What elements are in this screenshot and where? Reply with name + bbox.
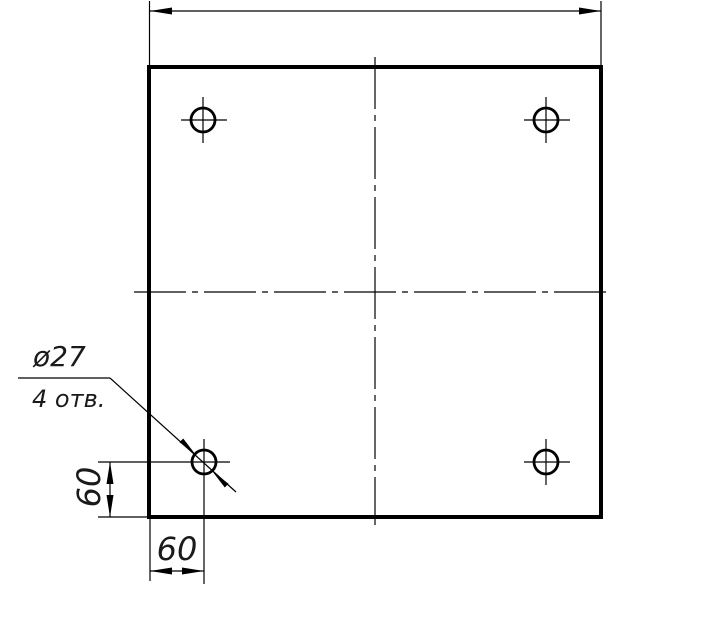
leader-arrowhead-upper [180,439,196,455]
dimension-bottom-60: 60 [150,519,204,581]
plate-drawing: 60 60 ø27 4 отв. [0,0,713,631]
arrowhead-right [579,8,601,15]
hole-bottom-right [524,439,570,485]
drawing-canvas: 60 60 ø27 4 отв. [0,0,713,631]
hole-top-right [524,97,570,143]
leader-arrowhead-lower [213,472,229,488]
arrowhead-left [150,8,172,15]
dimension-top-width [150,1,602,66]
callout-count-label: 4 отв. [32,385,105,413]
hole-top-left [181,97,227,143]
arrowhead-right [182,568,204,575]
dimension-left-60: 60 [70,462,147,517]
dim-left-label: 60 [70,467,108,508]
arrowhead-left [150,568,172,575]
dim-bottom-label: 60 [157,530,198,568]
hole-callout: ø27 4 отв. [18,340,236,492]
callout-diameter-label: ø27 [32,340,86,373]
leader-diagonal-line [110,378,236,492]
